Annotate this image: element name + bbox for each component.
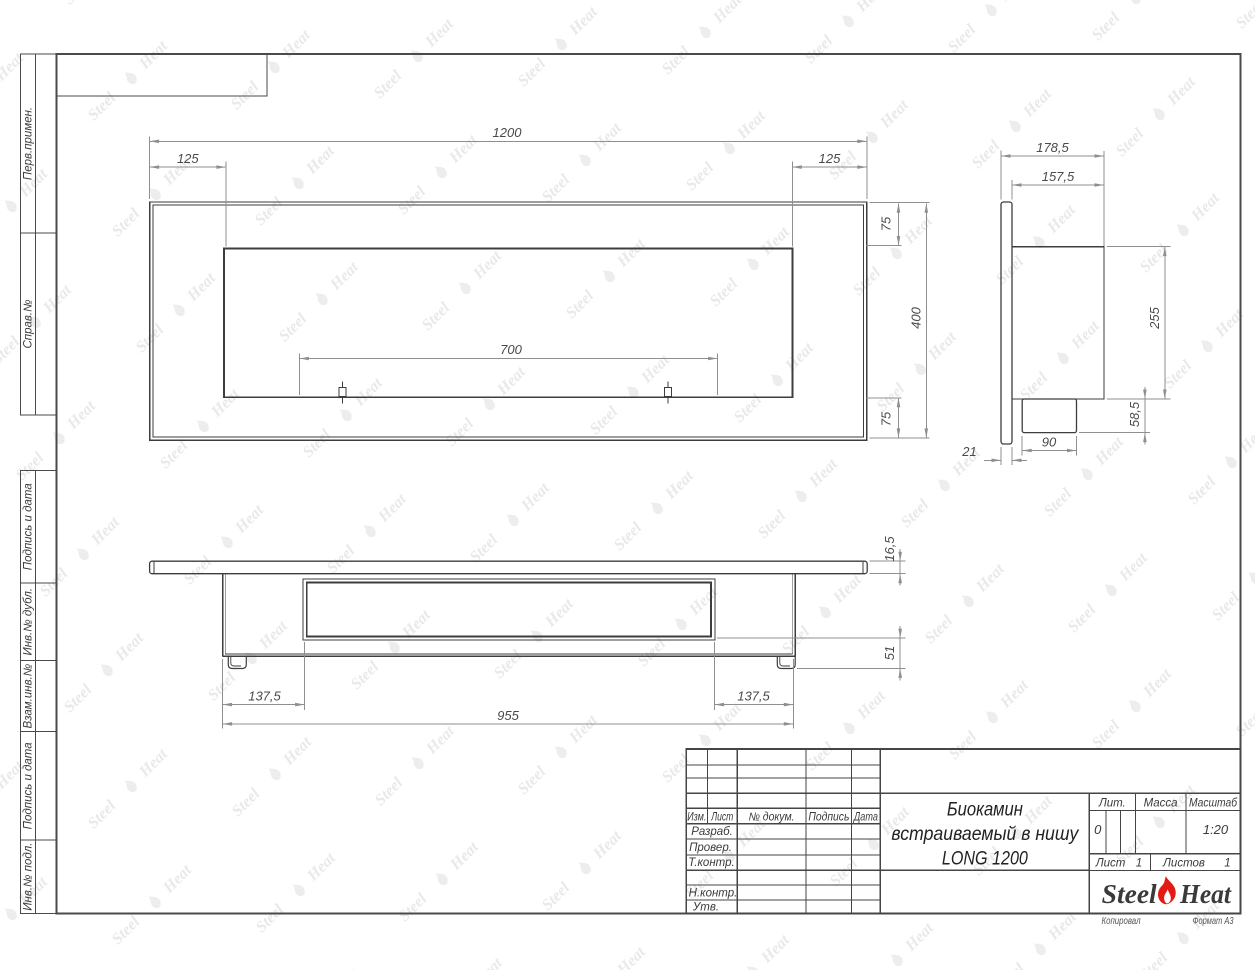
svg-text:58,5: 58,5 xyxy=(1127,401,1142,427)
svg-text:255: 255 xyxy=(1147,306,1162,329)
svg-text:Листов: Листов xyxy=(1162,858,1205,870)
svg-text:Провер.: Провер. xyxy=(689,842,732,854)
svg-text:Лит.: Лит. xyxy=(1098,797,1126,809)
svg-text:LONG 1200: LONG 1200 xyxy=(942,849,1028,870)
svg-text:157,5: 157,5 xyxy=(1042,169,1075,184)
svg-text:51: 51 xyxy=(882,646,897,660)
svg-text:1: 1 xyxy=(1136,858,1142,870)
svg-text:Разраб.: Разраб. xyxy=(691,826,733,838)
svg-text:1200: 1200 xyxy=(493,125,523,140)
svg-text:Взам.инв.№: Взам.инв.№ xyxy=(23,663,35,728)
svg-text:Steel: Steel xyxy=(1102,879,1157,909)
svg-text:Справ.№: Справ.№ xyxy=(23,299,35,349)
svg-text:Подпись и дата: Подпись и дата xyxy=(23,742,35,829)
svg-text:125: 125 xyxy=(819,151,841,166)
svg-text:700: 700 xyxy=(500,342,522,357)
svg-text:75: 75 xyxy=(879,216,894,231)
svg-text:1:20: 1:20 xyxy=(1203,822,1229,837)
svg-text:0: 0 xyxy=(1094,822,1102,837)
svg-text:Биокамин: Биокамин xyxy=(947,800,1023,821)
svg-text:137,5: 137,5 xyxy=(737,689,770,704)
svg-text:137,5: 137,5 xyxy=(248,689,281,704)
svg-text:21: 21 xyxy=(961,444,976,459)
svg-text:Инв.№ дубл.: Инв.№ дубл. xyxy=(23,588,35,656)
svg-text:75: 75 xyxy=(879,411,894,426)
svg-text:Инв.№ подл.: Инв.№ подл. xyxy=(23,843,35,911)
svg-text:Т.контр.: Т.контр. xyxy=(688,857,734,869)
svg-text:№ докум.: № докум. xyxy=(749,811,795,823)
svg-text:Изм.: Изм. xyxy=(687,811,706,823)
svg-text:90: 90 xyxy=(1042,434,1057,449)
svg-text:Копировал: Копировал xyxy=(1102,915,1141,927)
svg-text:Перв.примен.: Перв.примен. xyxy=(23,107,35,180)
svg-text:Н.контр.: Н.контр. xyxy=(689,888,738,900)
svg-text:125: 125 xyxy=(177,151,199,166)
svg-text:Масса: Масса xyxy=(1144,797,1178,809)
svg-text:Масштаб: Масштаб xyxy=(1189,797,1237,809)
svg-text:Лист: Лист xyxy=(711,811,734,823)
svg-text:Дата: Дата xyxy=(852,811,878,823)
svg-text:Подпись и дата: Подпись и дата xyxy=(23,483,35,570)
svg-text:Heat: Heat xyxy=(1179,879,1232,909)
svg-text:16,5: 16,5 xyxy=(882,536,897,562)
svg-text:Формат А3: Формат А3 xyxy=(1193,915,1234,927)
svg-text:400: 400 xyxy=(908,306,923,328)
svg-text:встраиваемый в нишу: встраиваемый в нишу xyxy=(891,824,1079,845)
svg-text:Лист: Лист xyxy=(1095,858,1126,870)
svg-text:Подпись: Подпись xyxy=(808,811,849,823)
svg-text:Утв.: Утв. xyxy=(692,901,719,913)
svg-text:1: 1 xyxy=(1224,858,1230,870)
svg-text:955: 955 xyxy=(497,708,519,723)
svg-text:178,5: 178,5 xyxy=(1036,140,1069,155)
